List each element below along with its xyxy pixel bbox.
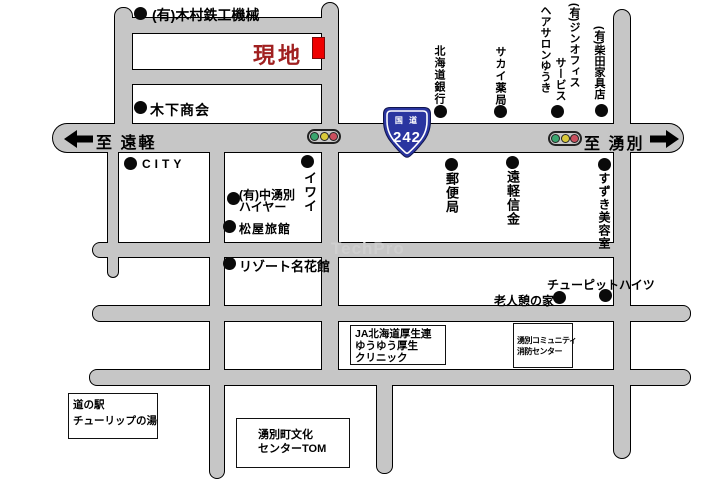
road-top2 — [122, 70, 336, 84]
road-v5 — [377, 372, 392, 473]
site-label: 現地 — [253, 38, 303, 70]
road-v2 — [322, 3, 338, 378]
box-michinoeki: 道の駅 チューリップの湯 — [68, 393, 158, 439]
poi-dot-roujin-ikoi — [553, 291, 566, 304]
box-ja-line1: JA北海道厚生連 — [355, 328, 445, 340]
map-canvas: TechPro 至 遠軽 至 湧別 国 道 242 現地 — [0, 0, 720, 490]
poi-dot-shibata — [595, 104, 608, 117]
label-matsuya: 松屋旅館 — [239, 220, 291, 237]
label-salon-col1: (有)ジンオフィス — [568, 3, 579, 87]
signal-yellow-icon — [320, 132, 329, 141]
road-v6 — [614, 10, 630, 458]
route-242-sign: 国 道 242 — [382, 106, 432, 158]
poi-dot-sakai-pharmacy — [494, 105, 507, 118]
label-sakai-pharmacy: サカイ薬局 — [494, 46, 505, 106]
box-fire-line2: 消防センター — [517, 346, 572, 357]
label-engaru-shinkin: 遠軽信金 — [506, 170, 519, 226]
poi-dot-post-office — [445, 158, 458, 171]
signal-green-icon — [310, 132, 319, 141]
road-v3 — [210, 138, 224, 478]
arrow-left-icon — [64, 130, 93, 148]
signal-red-icon — [570, 134, 579, 143]
poi-dot-resort — [223, 257, 236, 270]
poi-dot-chupit-heights — [599, 289, 612, 302]
label-nakayubetsu-line2: ハイヤー — [239, 201, 295, 213]
box-fire-center: 湧別コミュニティ 消防センター — [513, 323, 573, 368]
box-bunka-line1: 湧別町文化 — [258, 428, 349, 442]
direction-yubetsu: 至 湧別 — [584, 130, 644, 154]
route-sign-number: 242 — [393, 129, 421, 146]
label-post-office: 郵便局 — [445, 172, 458, 214]
site-marker — [312, 37, 325, 59]
traffic-signal-left — [307, 129, 341, 144]
label-kinoshita: 木下商会 — [150, 100, 210, 120]
poi-dot-kimura — [134, 7, 147, 20]
direction-engaru: 至 遠軽 — [96, 129, 156, 153]
box-bunka-center: 湧別町文化 センターTOM — [236, 418, 350, 468]
poi-dot-hokkaido-bank — [434, 105, 447, 118]
label-nakayubetsu-hire: (有)中湧別 ハイヤー — [239, 189, 295, 213]
box-fire-line1: 湧別コミュニティ — [517, 335, 572, 346]
arrow-right-icon — [650, 130, 679, 148]
label-roujin-ikoi: 老人憩の家 — [494, 292, 554, 309]
box-michinoeki-line2: チューリップの湯 — [73, 413, 157, 429]
road-v1 — [115, 8, 132, 133]
watermark: TechPro — [331, 239, 405, 259]
box-ja-clinic: JA北海道厚生連 ゆうゆう厚生 クリニック — [350, 325, 446, 365]
signal-green-icon — [551, 134, 560, 143]
label-suzuki-salon: すずき美容室 — [598, 172, 610, 250]
label-hokkaido-bank: 北海道銀行 — [433, 45, 444, 105]
label-shibata: (有)柴田家具店 — [593, 26, 604, 99]
label-resort: リゾート名花館 — [239, 256, 330, 275]
box-michinoeki-line1: 道の駅 — [73, 397, 157, 413]
poi-dot-nakayubetsu-hire — [227, 192, 240, 205]
box-ja-line2: ゆうゆう厚生 — [355, 340, 445, 352]
poi-dot-iwai — [301, 155, 314, 168]
road-h4 — [93, 306, 690, 321]
label-kimura: (有)木村鉄工機械 — [152, 5, 259, 25]
poi-dot-matsuya — [223, 220, 236, 233]
traffic-signal-right — [548, 131, 582, 146]
signal-yellow-icon — [561, 134, 570, 143]
poi-dot-suzuki-salon — [598, 158, 611, 171]
label-salon-col2: サービス — [554, 57, 565, 101]
route-sign-category: 国 道 — [395, 115, 419, 125]
poi-dot-kinoshita — [134, 101, 147, 114]
label-city: CITY — [142, 157, 185, 171]
poi-dot-salon — [551, 105, 564, 118]
poi-dot-engaru-shinkin — [506, 156, 519, 169]
box-ja-line3: クリニック — [355, 352, 445, 364]
label-iwai: イワイ — [303, 171, 316, 213]
box-bunka-line2: センターTOM — [258, 442, 349, 456]
signal-red-icon — [329, 132, 338, 141]
road-v4 — [108, 138, 118, 277]
label-salon-col3: ヘアサロンゆうき — [539, 5, 550, 93]
poi-dot-city — [124, 157, 137, 170]
